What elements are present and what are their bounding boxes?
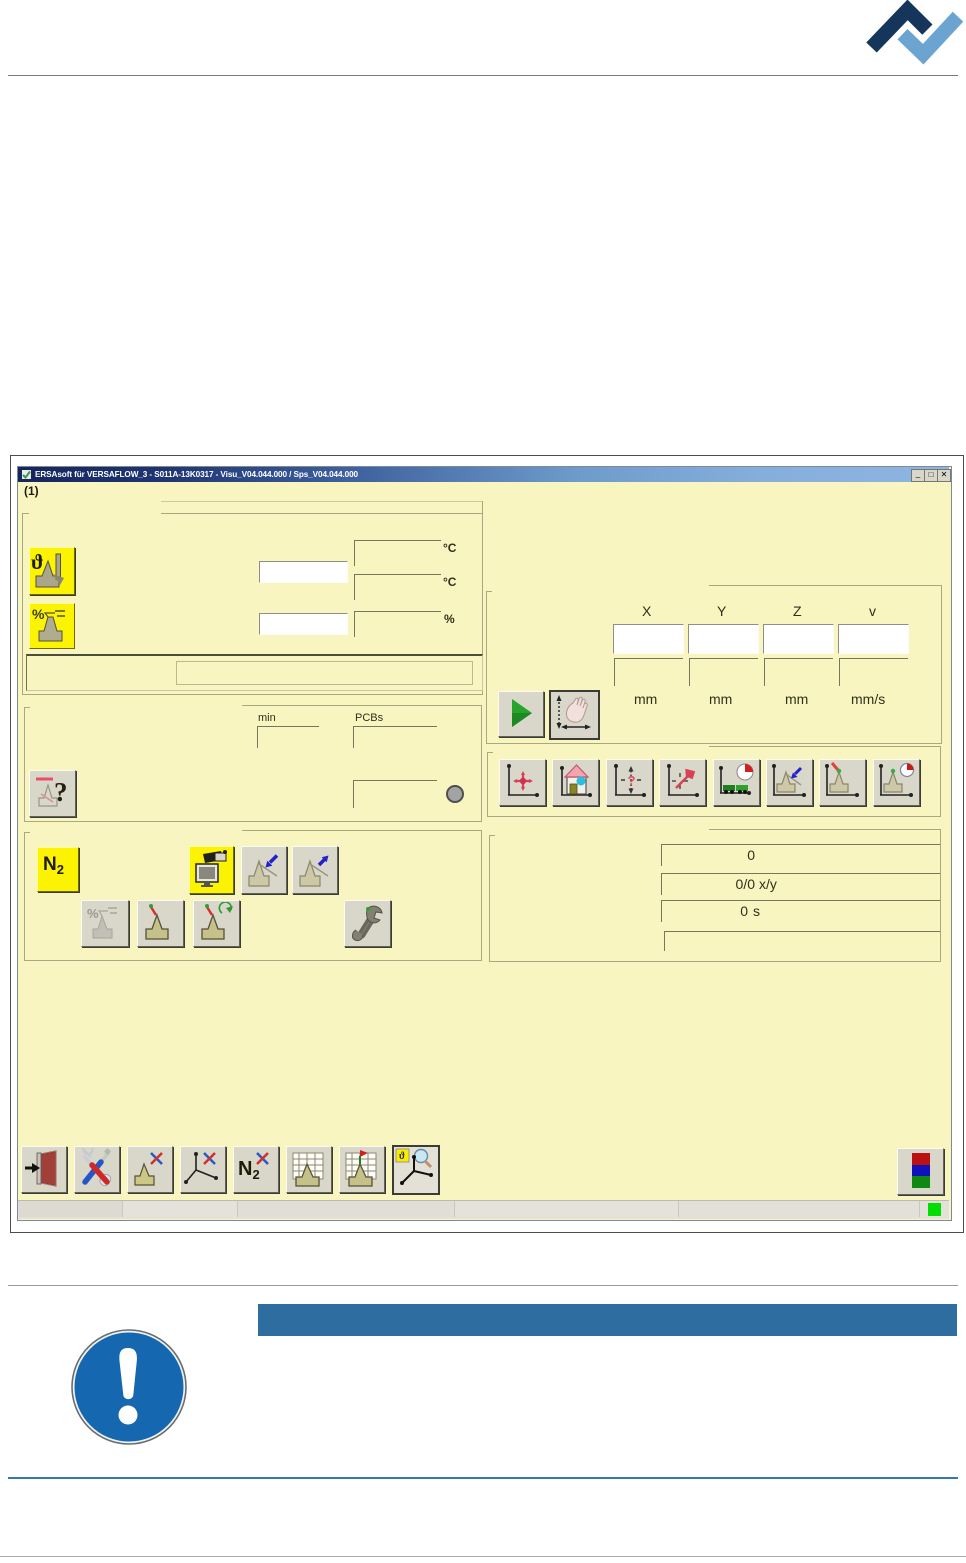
svg-text:ϑ: ϑ xyxy=(399,1151,405,1162)
svg-text:?: ? xyxy=(628,773,636,788)
svg-text:?: ? xyxy=(54,777,68,807)
svg-text:ϑ: ϑ xyxy=(31,550,44,574)
svg-text:%: % xyxy=(87,906,99,921)
svg-text:%: % xyxy=(32,606,45,622)
